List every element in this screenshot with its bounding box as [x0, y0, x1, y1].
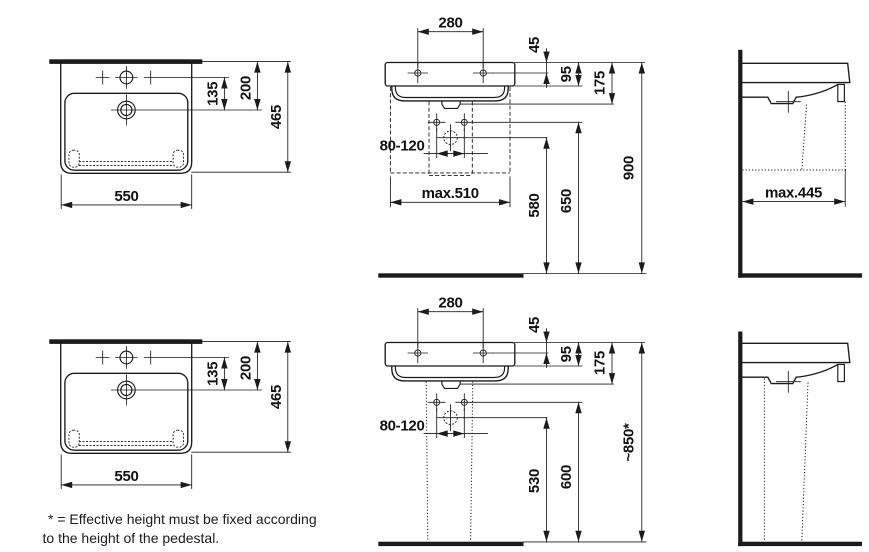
dim-label-850: ~850*: [621, 423, 638, 462]
dim-label-900: 900: [621, 156, 638, 180]
front-view-pedestal: 280 45 95 175 80-120 530 600 ~850*: [378, 294, 646, 546]
dim-label-280: 280: [438, 294, 462, 311]
side-view-wall-hung: max.445: [738, 50, 862, 278]
dim-label-80-120: 80-120: [380, 417, 425, 434]
dim-label-465: 465: [268, 385, 285, 409]
floor-line: [738, 542, 862, 546]
wall-line: [738, 50, 742, 278]
dim-label-550: 550: [114, 468, 138, 485]
dim-label-135: 135: [205, 82, 222, 106]
dim-label-max-445: max.445: [765, 184, 822, 201]
dim-label-175: 175: [591, 351, 608, 375]
footnote: * = Effective height must be fixed accor…: [43, 511, 317, 546]
dim-label-280: 280: [438, 14, 462, 31]
dim-label-200: 200: [238, 76, 255, 100]
front-view-wall-hung: 280 45 95 175 80-120 max.510 580 650 900: [378, 14, 646, 277]
plan-view-top-lineart: [49, 59, 291, 208]
dim-label-45: 45: [526, 317, 543, 333]
footnote-line-1: * = Effective height must be fixed accor…: [48, 511, 317, 527]
side-view-pedestal-lineart: [742, 343, 849, 392]
dim-label-max-510: max.510: [422, 185, 479, 202]
dim-label-550: 550: [114, 188, 138, 205]
side-view-wall-hung-lineart: [742, 63, 849, 112]
side-view-pedestal: [738, 332, 862, 547]
dim-label-200: 200: [238, 356, 255, 380]
dim-label-465: 465: [268, 105, 285, 129]
floor-line: [738, 273, 862, 277]
dim-label-600: 600: [558, 465, 575, 489]
plan-view-top: 135 200 465 550: [49, 59, 291, 208]
dim-label-530: 530: [526, 469, 543, 493]
technical-drawing-sheet: 135 200 465 550 135 200 465 550: [0, 0, 869, 552]
wall-line: [738, 332, 742, 547]
plan-view-bottom: 135 200 465 550: [49, 339, 291, 488]
dim-label-175: 175: [591, 71, 608, 95]
dim-label-80-120: 80-120: [380, 137, 425, 154]
dim-label-135: 135: [205, 362, 222, 386]
washbasin-dimension-drawing: 135 200 465 550 135 200 465 550: [0, 0, 869, 552]
footnote-line-2: to the height of the pedestal.: [43, 530, 220, 546]
dim-label-95: 95: [558, 66, 575, 82]
dim-label-580: 580: [526, 193, 543, 217]
plan-view-bottom-lineart: [49, 339, 291, 488]
floor-line: [378, 273, 523, 277]
floor-line: [378, 542, 523, 546]
dim-label-45: 45: [526, 37, 543, 53]
dim-label-650: 650: [558, 189, 575, 213]
dim-label-95: 95: [558, 346, 575, 362]
